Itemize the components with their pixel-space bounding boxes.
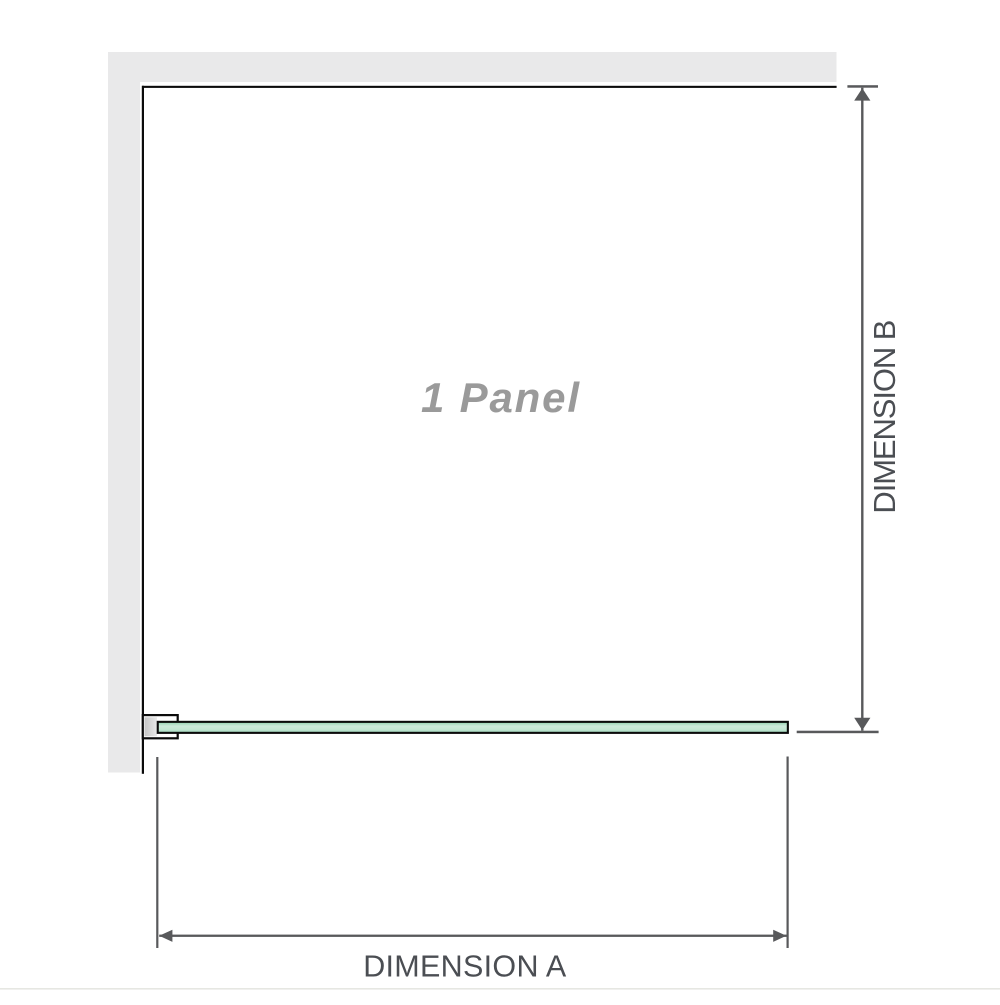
svg-text:DIMENSION A: DIMENSION A bbox=[363, 949, 567, 983]
svg-text:DIMENSION B: DIMENSION B bbox=[867, 320, 902, 514]
